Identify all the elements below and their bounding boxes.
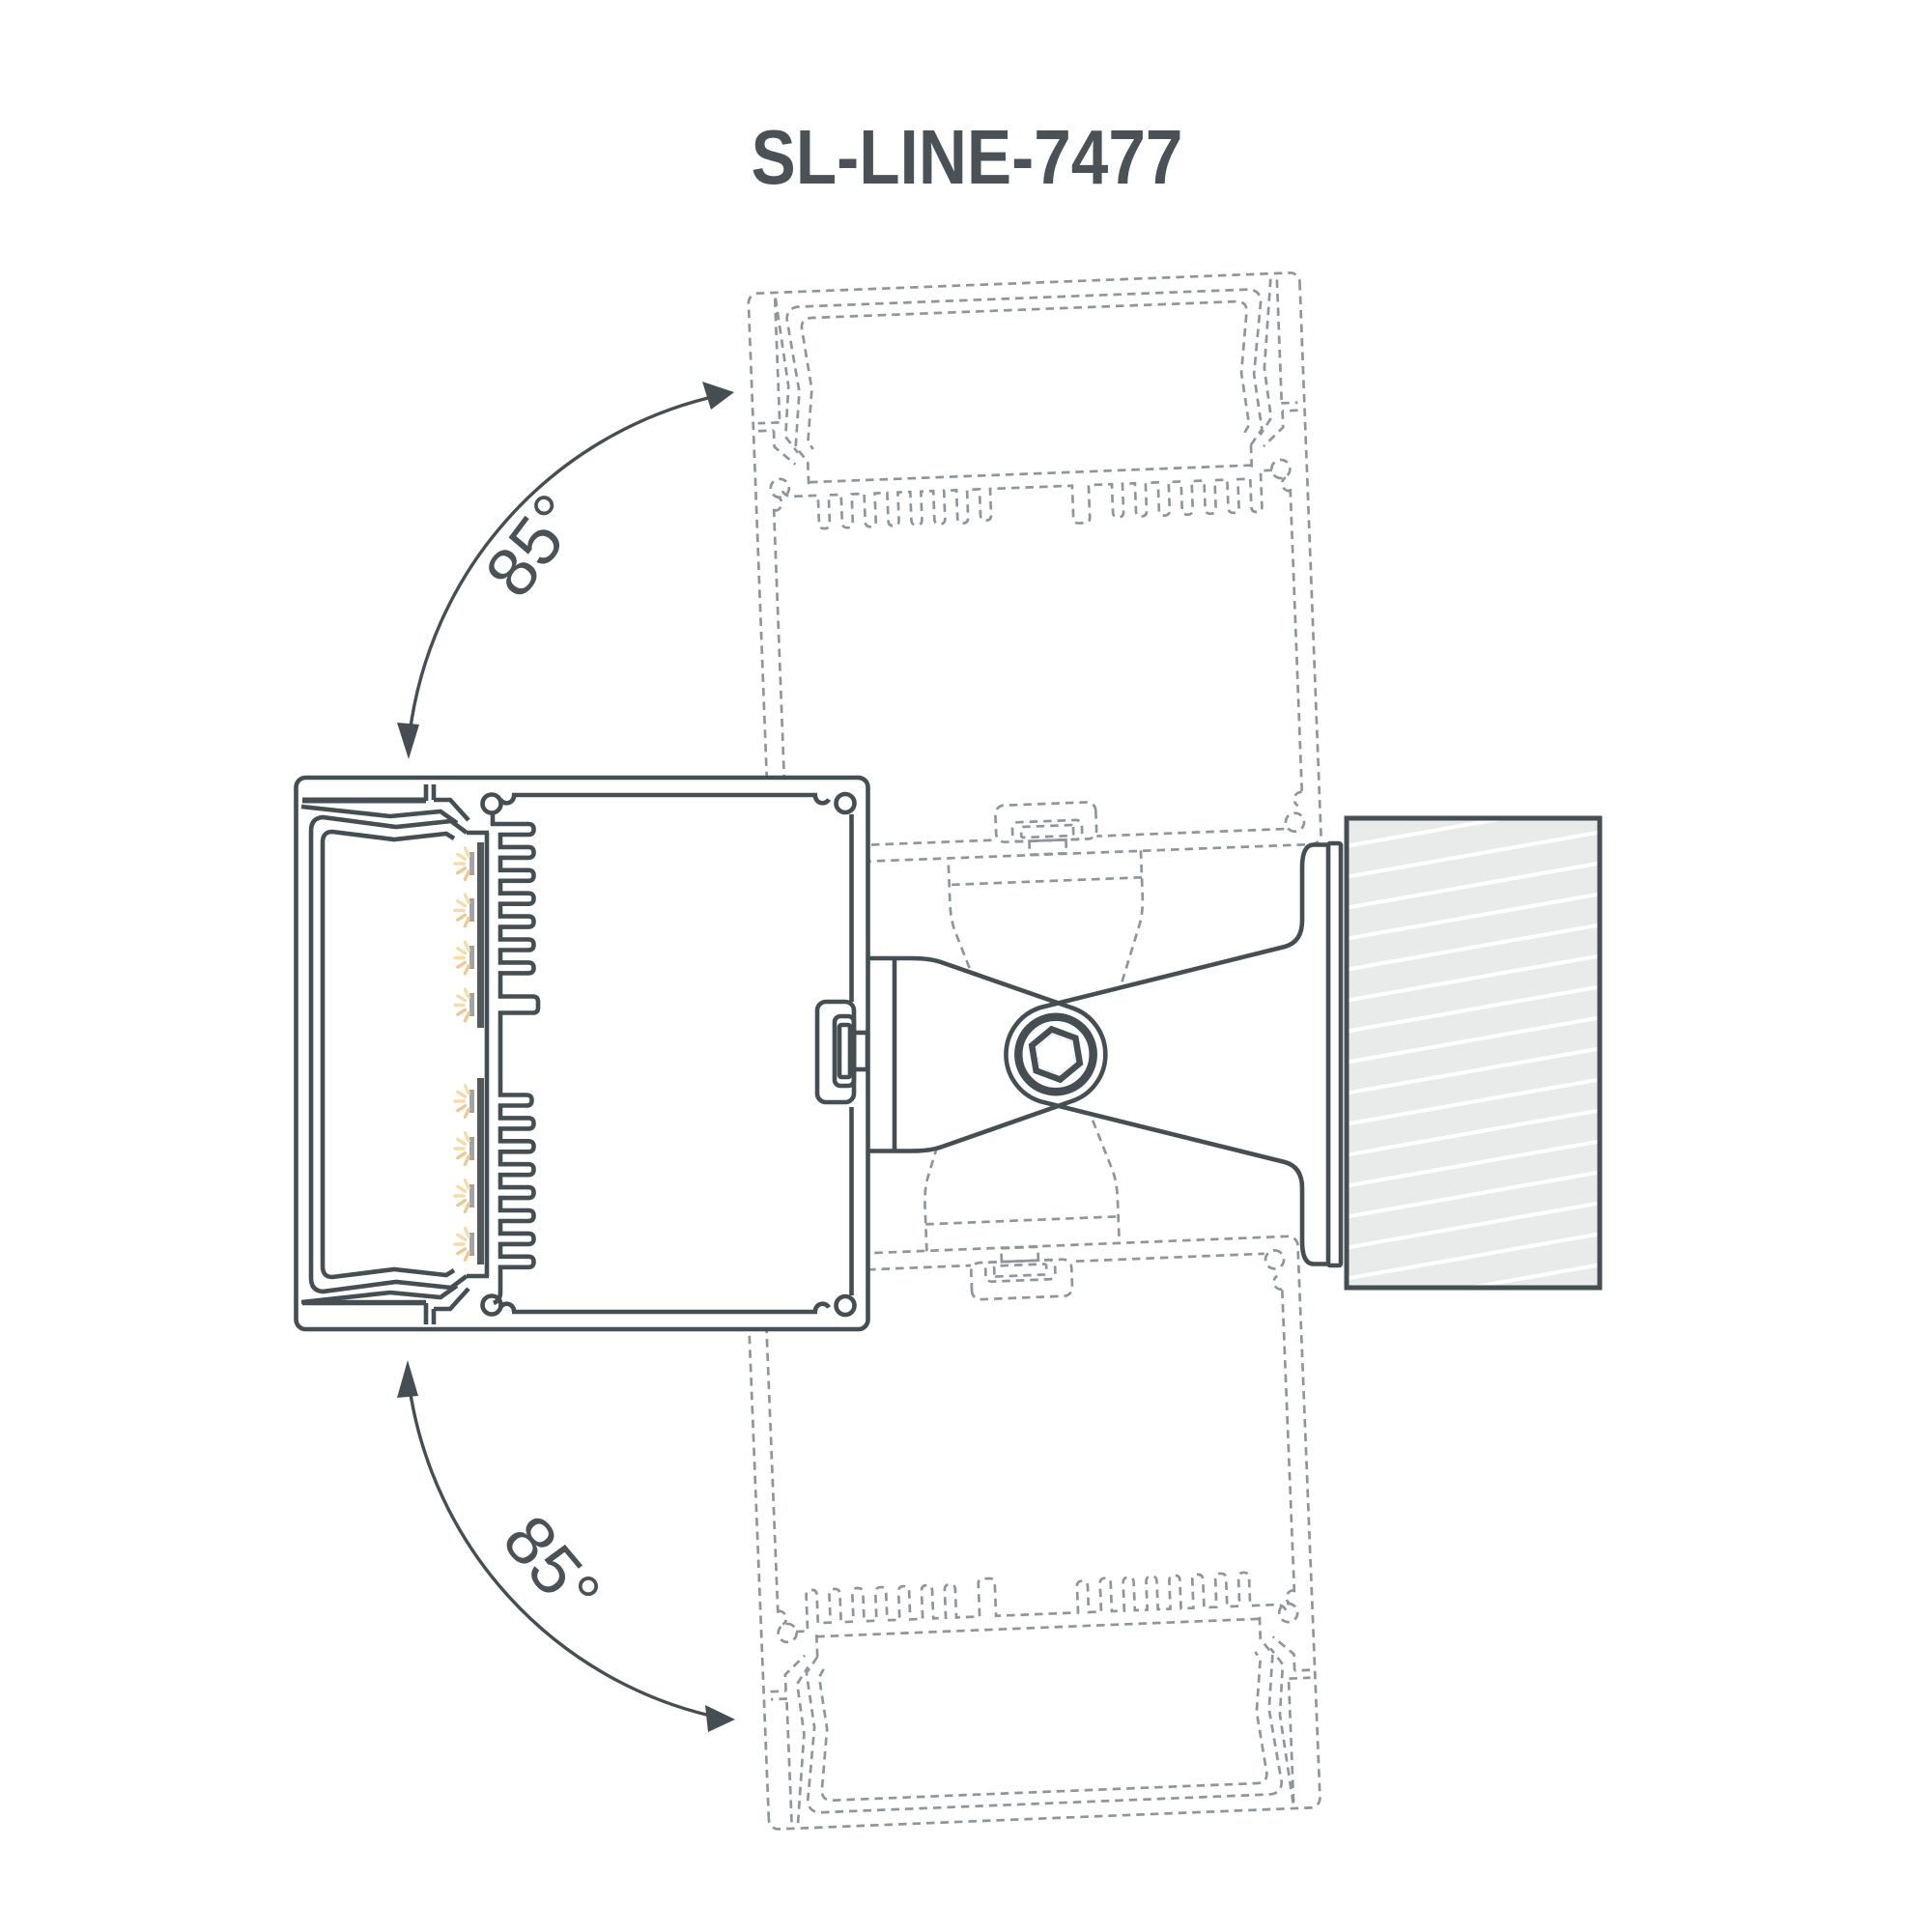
svg-text:SL-LINE-7477: SL-LINE-7477 bbox=[752, 114, 1183, 200]
